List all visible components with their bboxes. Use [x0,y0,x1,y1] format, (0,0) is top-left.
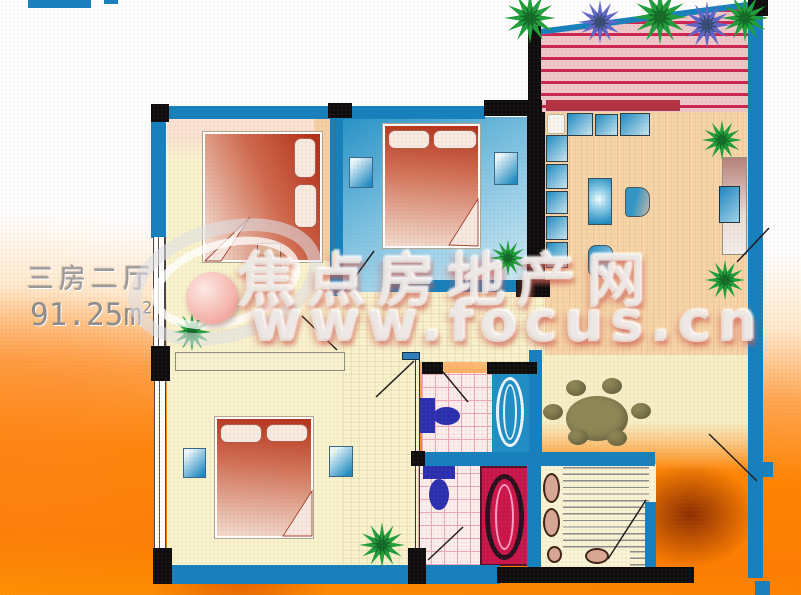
plant-icon [488,238,528,278]
wall-segment [755,581,770,595]
side-table [547,114,565,134]
wall-segment [527,464,541,568]
wall-segment [170,565,500,584]
nightstand [494,152,518,185]
kitchen-counter [563,467,649,551]
bathtub-inner-ring [503,384,517,440]
wall-corner-block [328,103,352,118]
wall-segment-black [527,112,545,290]
dining-chair [631,403,651,419]
window [154,380,166,548]
toilet-bowl [429,479,449,510]
dining-chair [602,378,622,394]
pillow [266,424,308,442]
window [153,237,166,347]
wall-segment [151,117,166,238]
plant-icon [502,0,558,46]
area-label: 91.25m2 [30,297,152,333]
plant-icon [703,258,747,302]
wardrobe [175,352,345,371]
pillow [220,424,262,443]
nightstand [349,157,373,188]
bathtub [485,474,524,560]
pillow [294,184,317,228]
wall-segment [330,116,343,296]
dining-chair [566,380,586,396]
wall-corner-block [153,548,172,584]
toilet-bowl [433,407,460,425]
sofa-cushion [546,135,568,162]
sofa-cushion [546,191,568,214]
wall-segment [748,12,763,578]
wall-corner-block [411,451,425,466]
tv [719,186,740,223]
focus-logo-sphere [186,272,238,324]
kitchen-basin [543,508,560,537]
sofa-cushion [620,113,650,136]
wall-segment-black [487,362,537,374]
wall-segment [167,106,485,119]
plant-icon [719,0,771,44]
nightstand [257,243,281,268]
wall-corner-block [408,548,426,584]
kitchen-basin [585,548,609,564]
coffee-table [588,178,612,225]
pillow [388,130,430,149]
armchair [625,187,650,217]
kitchen-basin [543,473,560,503]
bathtub [496,377,524,447]
nightstand [183,448,206,478]
door-hinge-marker [402,352,420,360]
sofa-cushion [567,113,593,136]
wall-segment [645,502,656,567]
kitchen-basin [547,546,562,563]
wall-segment-black [497,567,694,583]
plant-icon [357,520,407,570]
sofa-cushion [595,114,618,136]
wall-corner-block [151,346,170,381]
wall-segment [390,280,518,292]
sofa-cushion [546,242,568,268]
area-value: 91.25m [30,297,142,333]
stool [588,245,613,277]
wall-segment [763,462,773,477]
plant-icon [700,118,744,162]
top-edge-artifact [28,0,91,8]
dining-chair [607,430,627,446]
pillow [433,130,477,149]
plant-icon [576,0,624,46]
floorplan-image: 三房二厅 91.25m2 [0,0,801,595]
dining-chair [543,404,563,420]
layout-type-label: 三房二厅 [27,257,155,296]
dining-chair [568,429,588,445]
top-edge-artifact [104,0,118,4]
bathtub-inner-ring [495,484,514,550]
hallway-floor [343,290,548,362]
area-superscript: 2 [142,299,152,319]
sofa-cushion [546,216,568,240]
nightstand [329,446,353,477]
terrace-sliding-door-track [546,100,680,111]
bathroom2-tiled-floor [418,466,481,565]
wall-corner-block [516,280,550,297]
wall-corner-block [151,104,169,122]
sofa-cushion [546,164,568,189]
pillow [294,138,316,178]
wall-segment-black [422,362,443,374]
